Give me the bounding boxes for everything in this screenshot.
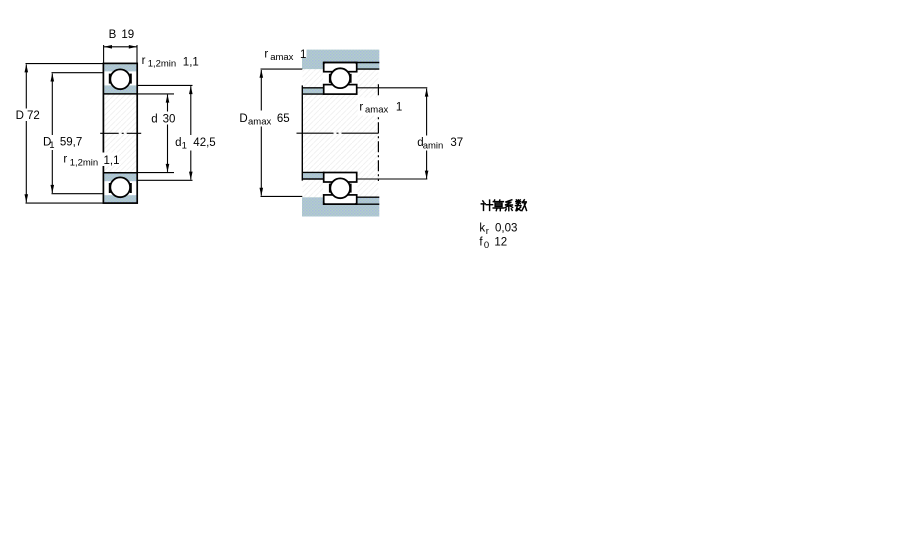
svg-text:k: k: [479, 222, 485, 234]
svg-text:37: 37: [450, 137, 463, 149]
svg-text:amax: amax: [270, 52, 293, 63]
svg-text:d: d: [175, 137, 181, 149]
svg-text:0,03: 0,03: [495, 222, 517, 234]
svg-text:r: r: [359, 101, 363, 113]
svg-text:30: 30: [163, 113, 176, 125]
svg-text:59,7: 59,7: [60, 137, 82, 149]
svg-text:42,5: 42,5: [193, 137, 215, 149]
svg-text:1,2min: 1,2min: [70, 158, 99, 169]
svg-text:1,1: 1,1: [104, 155, 120, 167]
svg-text:D: D: [16, 110, 24, 122]
svg-text:d: d: [151, 113, 157, 125]
svg-text:19: 19: [121, 29, 134, 41]
svg-text:72: 72: [27, 110, 40, 122]
svg-text:amax: amax: [365, 105, 388, 116]
svg-text:amax: amax: [248, 117, 271, 128]
svg-text:0: 0: [484, 240, 489, 251]
svg-text:amin: amin: [423, 140, 444, 151]
svg-text:r: r: [142, 55, 146, 67]
svg-text:1: 1: [396, 102, 402, 114]
svg-text:65: 65: [277, 113, 290, 125]
svg-text:r: r: [486, 226, 489, 237]
svg-text:1,2min: 1,2min: [148, 59, 177, 70]
svg-text:1,1: 1,1: [183, 56, 199, 68]
svg-text:r: r: [264, 48, 268, 60]
svg-text:1: 1: [300, 49, 306, 61]
svg-text:1: 1: [49, 140, 54, 151]
svg-text:1: 1: [182, 141, 187, 152]
svg-text:12: 12: [494, 237, 507, 249]
svg-text:B: B: [109, 29, 117, 41]
svg-text:D: D: [239, 113, 247, 125]
svg-text:r: r: [63, 154, 67, 166]
